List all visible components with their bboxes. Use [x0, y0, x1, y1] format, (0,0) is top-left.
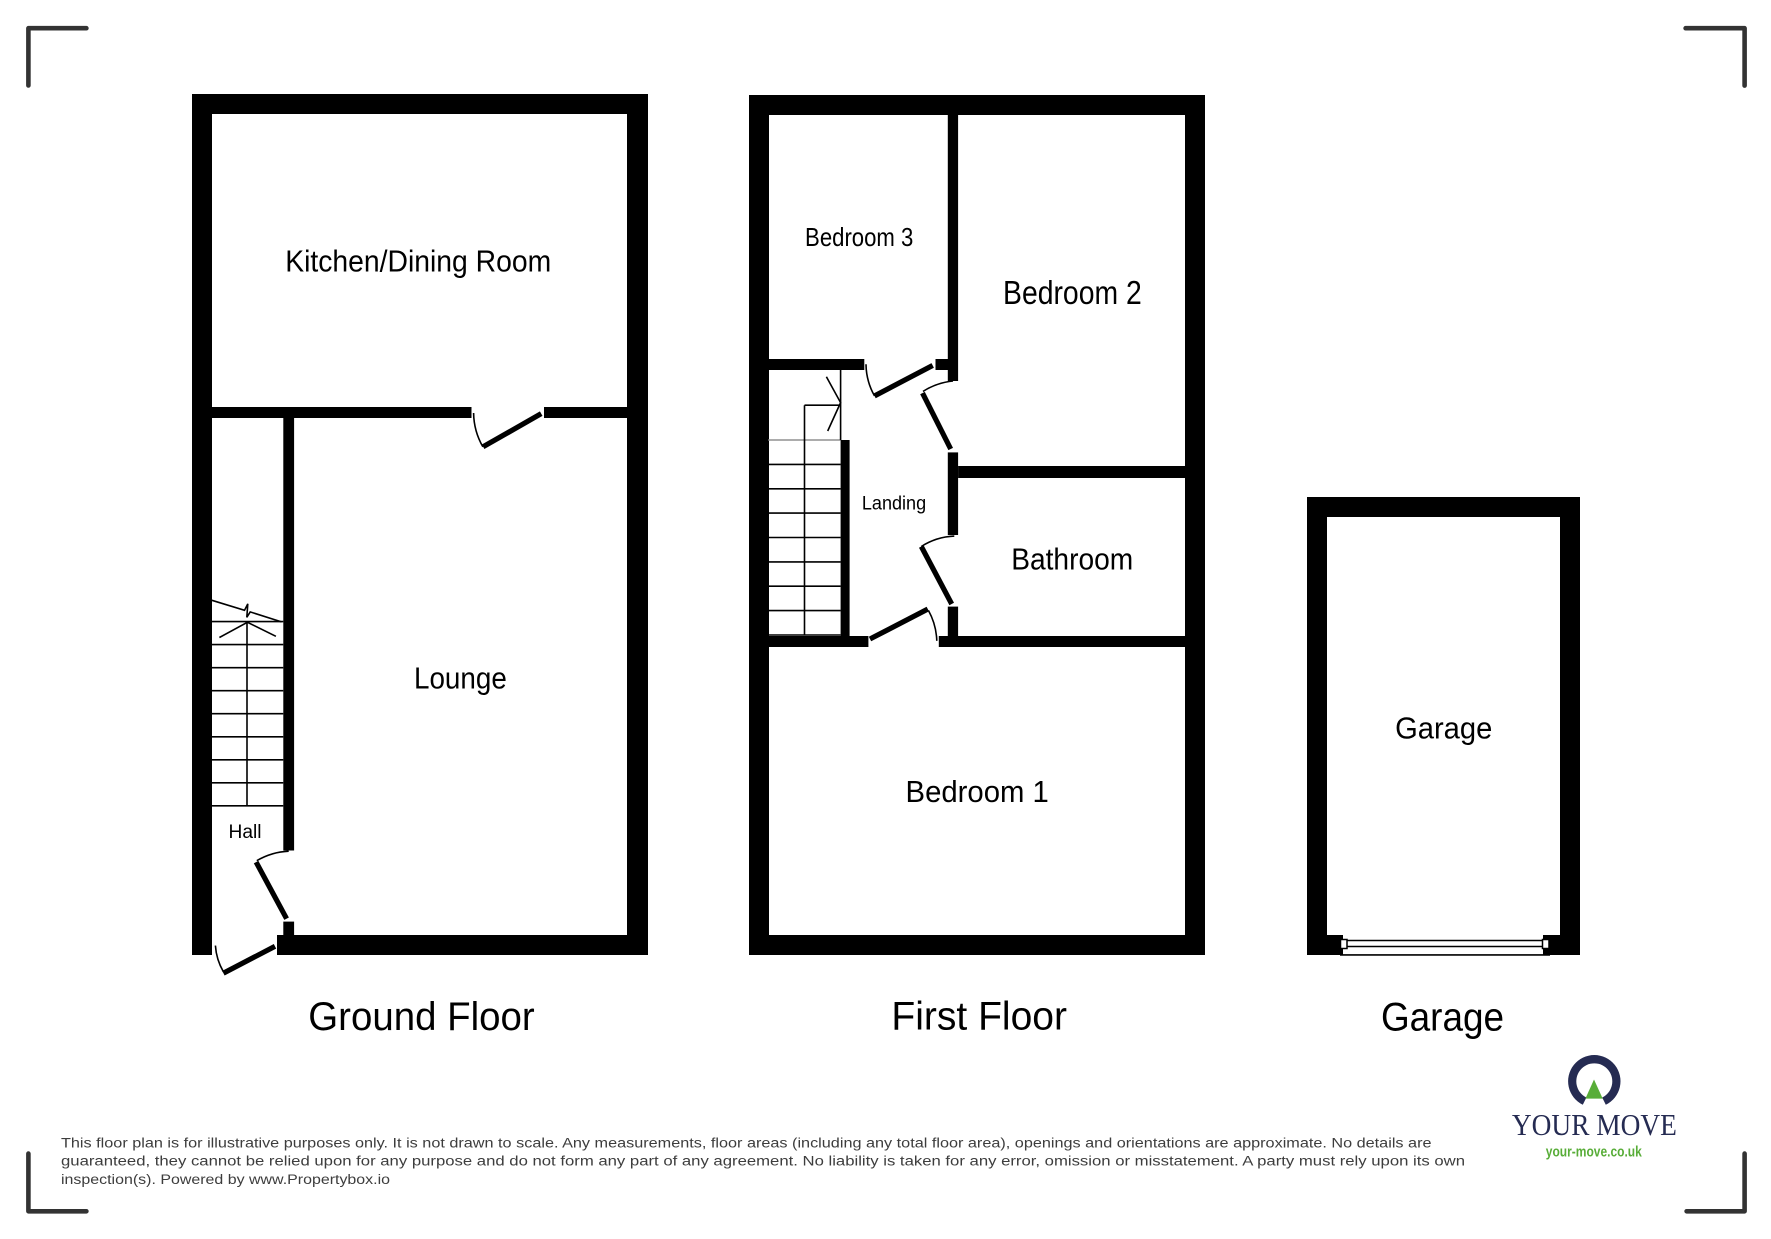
svg-text:YOUR MOVE: YOUR MOVE	[1512, 1107, 1677, 1142]
svg-text:Bedroom 2: Bedroom 2	[1003, 274, 1142, 311]
svg-text:Garage: Garage	[1381, 996, 1504, 1040]
svg-text:guaranteed, they cannot be rel: guaranteed, they cannot be relied upon f…	[61, 1154, 1465, 1169]
svg-text:Bathroom: Bathroom	[1011, 542, 1133, 577]
svg-text:Ground Floor: Ground Floor	[308, 995, 534, 1039]
svg-text:Lounge: Lounge	[414, 661, 507, 696]
svg-text:This floor plan is for illustr: This floor plan is for illustrative purp…	[61, 1135, 1432, 1150]
svg-text:Hall: Hall	[229, 822, 262, 843]
svg-text:First Floor: First Floor	[891, 995, 1067, 1039]
svg-text:Landing: Landing	[862, 493, 926, 514]
svg-text:Garage: Garage	[1395, 711, 1492, 746]
svg-text:inspection(s). Powered by www.: inspection(s). Powered by www.Propertybo…	[61, 1172, 390, 1187]
svg-text:Bedroom 3: Bedroom 3	[805, 222, 913, 252]
svg-text:Bedroom 1: Bedroom 1	[906, 774, 1049, 809]
svg-text:your-move.co.uk: your-move.co.uk	[1546, 1143, 1643, 1160]
svg-text:Kitchen/Dining Room: Kitchen/Dining Room	[285, 243, 551, 278]
